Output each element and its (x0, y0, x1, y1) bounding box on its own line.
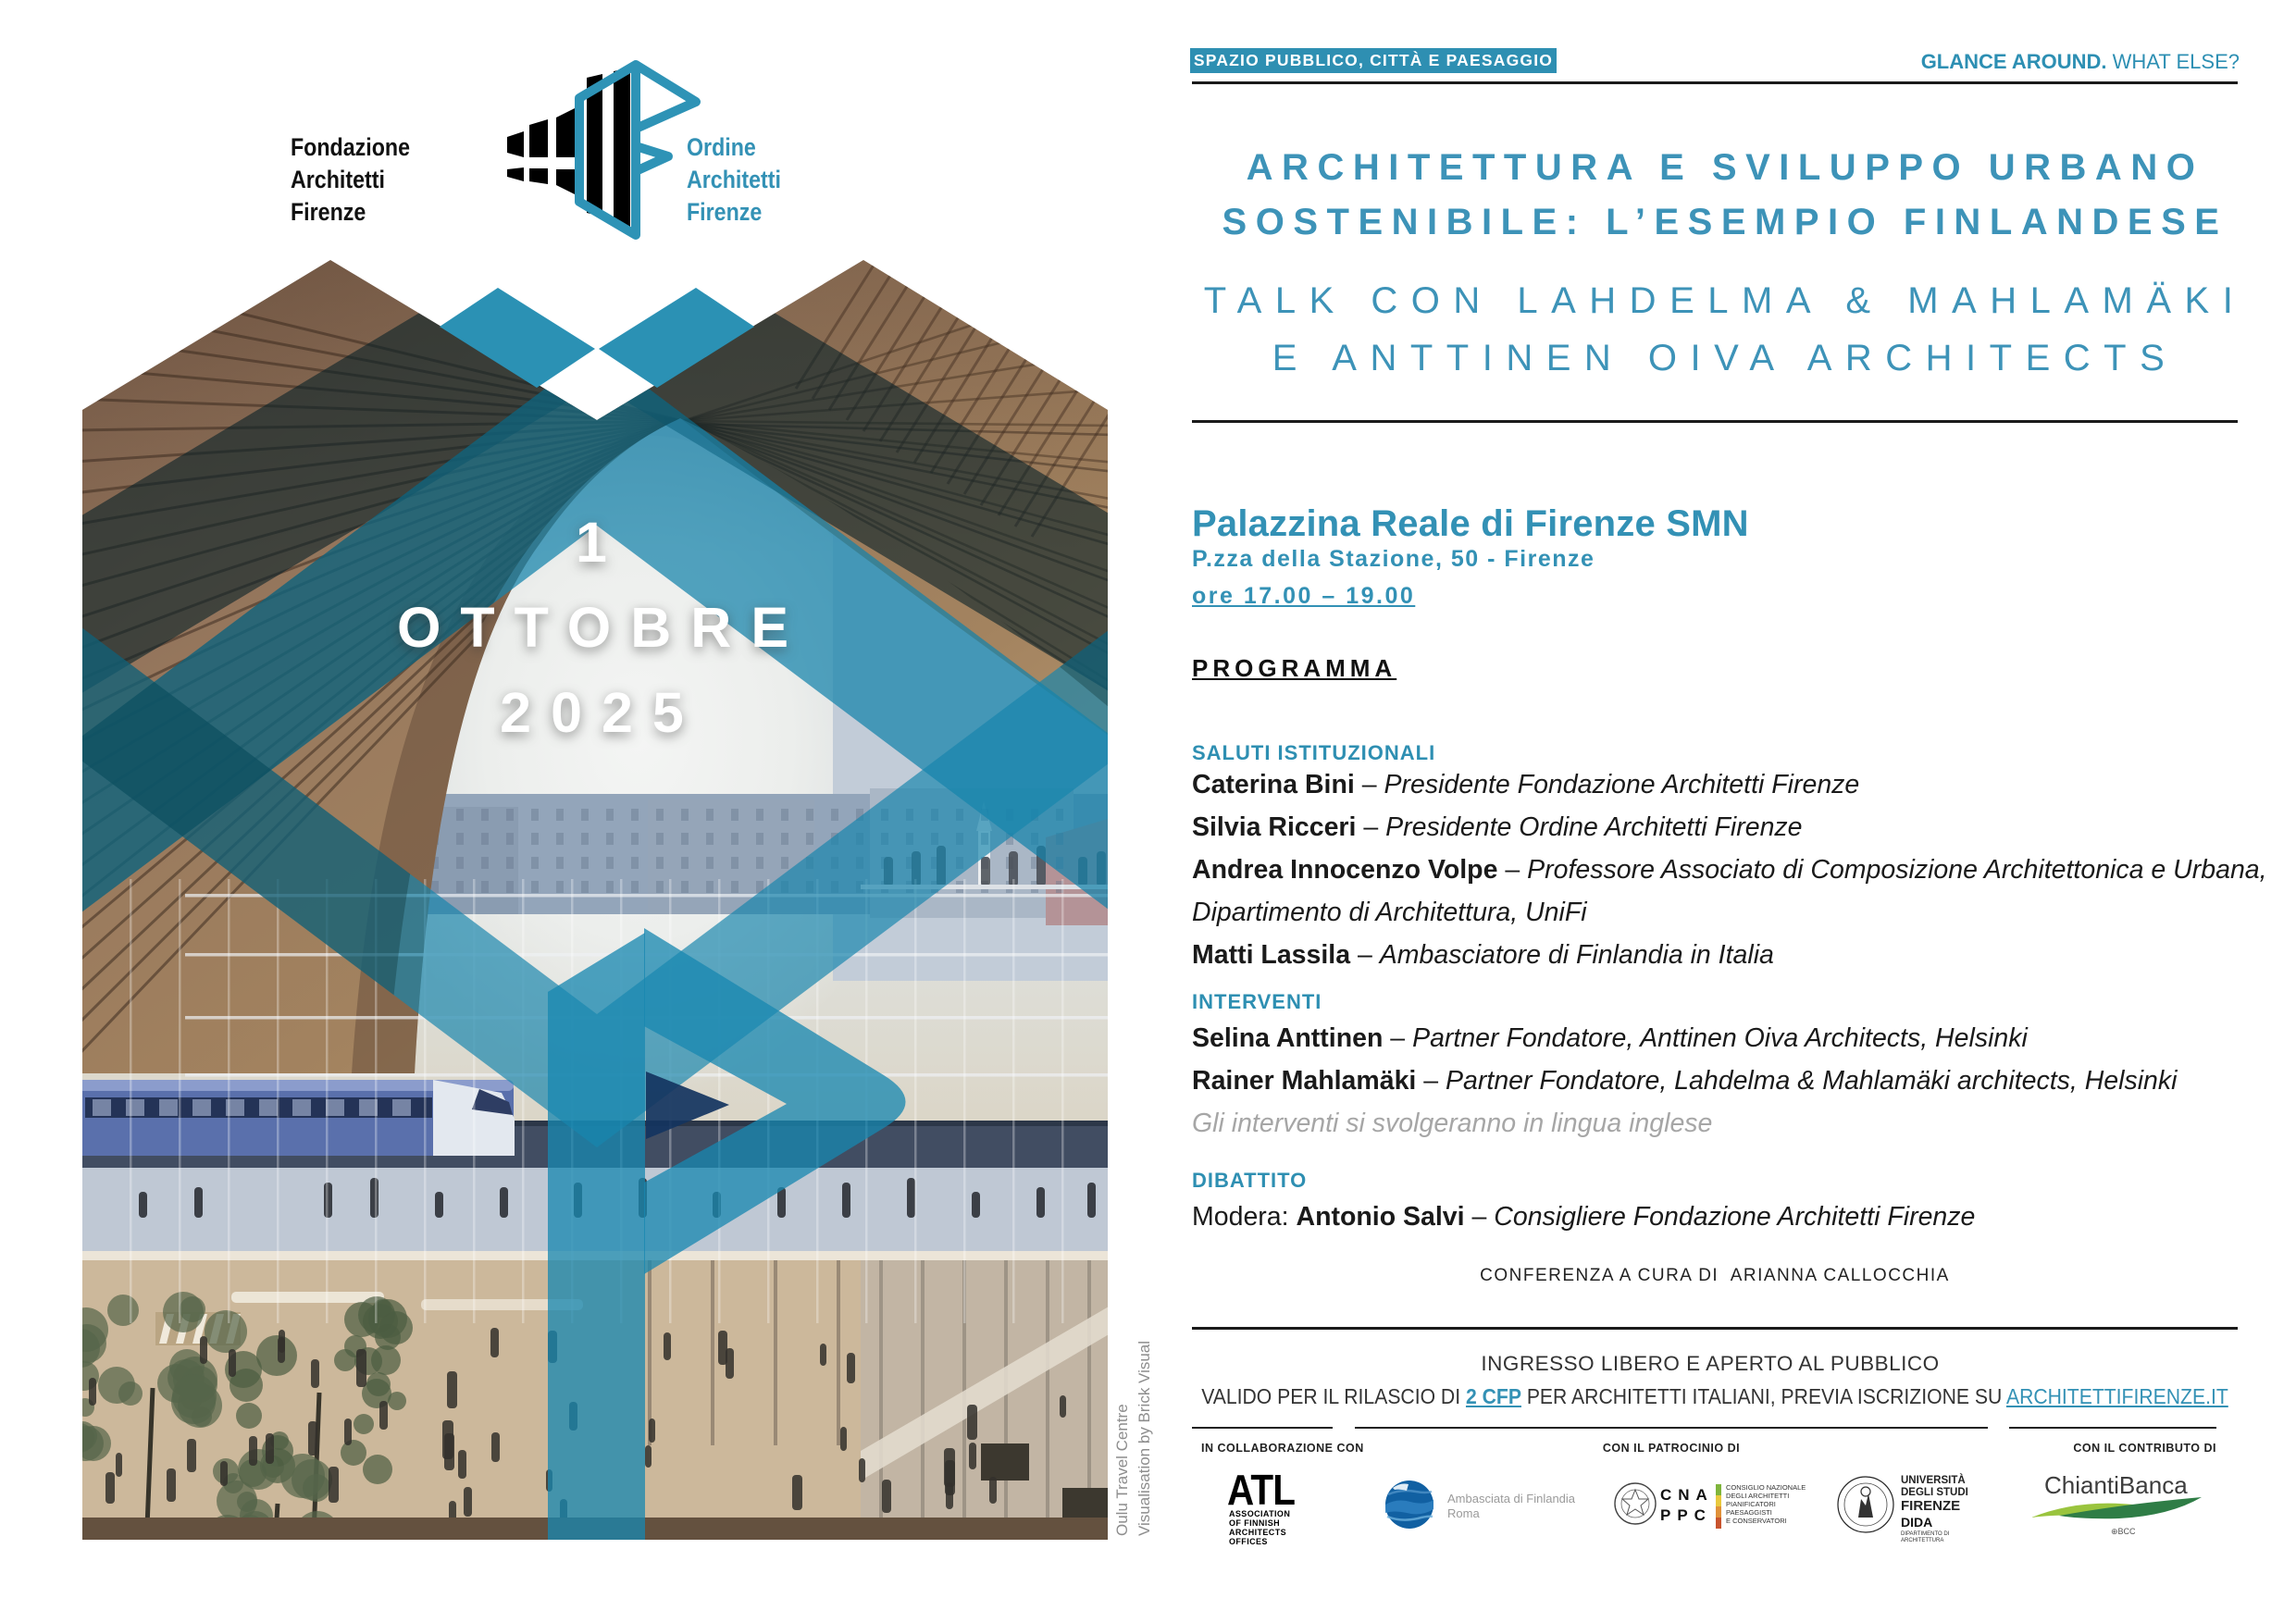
svg-text:CNA: CNA (1660, 1486, 1714, 1504)
svg-text:PAESAGGISTI: PAESAGGISTI (1726, 1508, 1772, 1517)
svg-text:PPC: PPC (1660, 1506, 1712, 1524)
svg-text:ARCHITETTURA: ARCHITETTURA (1901, 1538, 1943, 1543)
svg-text:FIRENZE: FIRENZE (1901, 1498, 1960, 1514)
svg-text:E CONSERVATORI: E CONSERVATORI (1726, 1517, 1787, 1525)
svg-text:DIDA: DIDA (1901, 1515, 1932, 1530)
svg-text:CONSIGLIO NAZIONALE: CONSIGLIO NAZIONALE (1726, 1483, 1806, 1492)
svg-text:2025: 2025 (500, 681, 703, 744)
svg-text:PIANIFICATORI: PIANIFICATORI (1726, 1500, 1776, 1508)
svg-text:DIPARTIMENTO DI: DIPARTIMENTO DI (1901, 1531, 1950, 1537)
svg-text:DEGLI STUDI: DEGLI STUDI (1901, 1487, 1968, 1498)
svg-text:⊕BCC: ⊕BCC (2111, 1527, 2136, 1536)
svg-text:Oulu Travel Centre: Oulu Travel Centre (1113, 1404, 1131, 1536)
svg-text:OTTOBRE: OTTOBRE (397, 596, 808, 659)
svg-text:UNIVERSITÀ: UNIVERSITÀ (1901, 1474, 1966, 1486)
svg-text:Visualisation by Brick Visual: Visualisation by Brick Visual (1136, 1341, 1153, 1536)
svg-text:DEGLI ARCHITETTI: DEGLI ARCHITETTI (1726, 1492, 1789, 1500)
svg-text:1: 1 (576, 511, 614, 574)
svg-text:ChiantiBanca: ChiantiBanca (2044, 1471, 2188, 1499)
